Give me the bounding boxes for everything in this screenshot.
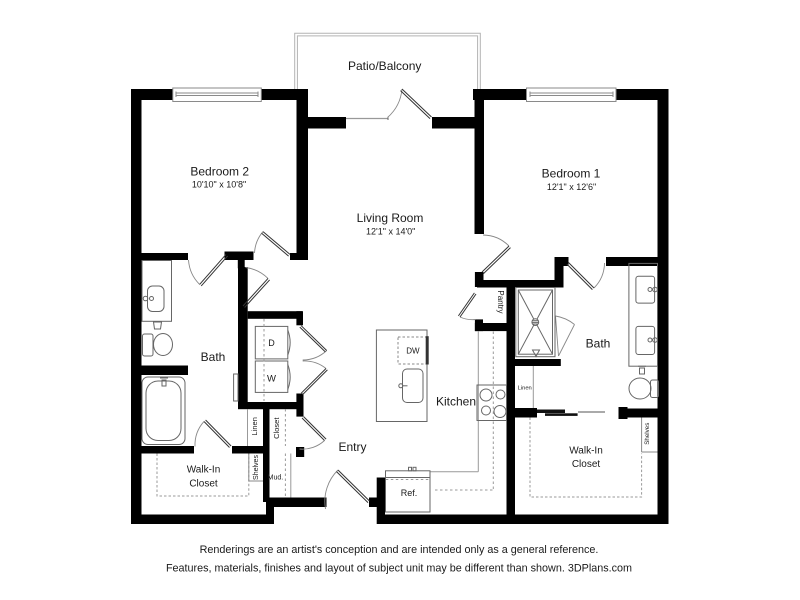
svg-text:Walk-In: Walk-In <box>187 465 221 476</box>
svg-text:12'1" x 14'0": 12'1" x 14'0" <box>366 227 415 237</box>
svg-text:Pantry: Pantry <box>496 290 505 313</box>
svg-text:Features, materials, finishes: Features, materials, finishes and layout… <box>166 563 632 575</box>
svg-text:Linen: Linen <box>518 386 532 392</box>
svg-text:Shelves: Shelves <box>253 455 260 480</box>
svg-text:Living Room: Living Room <box>357 211 424 225</box>
svg-text:Walk-In: Walk-In <box>569 445 603 456</box>
svg-text:10'10" x 10'8": 10'10" x 10'8" <box>192 179 246 189</box>
svg-text:Patio/Balcony: Patio/Balcony <box>348 59 421 73</box>
svg-text:Bath: Bath <box>586 337 611 351</box>
svg-text:Bedroom 2: Bedroom 2 <box>190 164 249 178</box>
svg-text:Linen: Linen <box>250 417 259 435</box>
svg-text:Bath: Bath <box>201 350 226 364</box>
svg-text:Ref.: Ref. <box>401 488 418 498</box>
svg-text:Entry: Entry <box>338 440 366 454</box>
svg-text:Kitchen: Kitchen <box>436 395 476 409</box>
svg-text:Mud.: Mud. <box>268 475 284 482</box>
svg-text:Closet: Closet <box>272 417 281 439</box>
svg-text:Bedroom 1: Bedroom 1 <box>542 166 601 180</box>
svg-text:12'1" x 12'6": 12'1" x 12'6" <box>547 182 596 192</box>
svg-text:DW: DW <box>406 346 420 355</box>
svg-text:Closet: Closet <box>189 478 218 489</box>
svg-text:Shelves: Shelves <box>644 423 651 445</box>
svg-text:W: W <box>267 374 276 385</box>
svg-text:Renderings are an artist's con: Renderings are an artist's conception an… <box>200 544 599 556</box>
svg-text:Closet: Closet <box>572 459 601 470</box>
svg-text:D: D <box>268 338 275 348</box>
